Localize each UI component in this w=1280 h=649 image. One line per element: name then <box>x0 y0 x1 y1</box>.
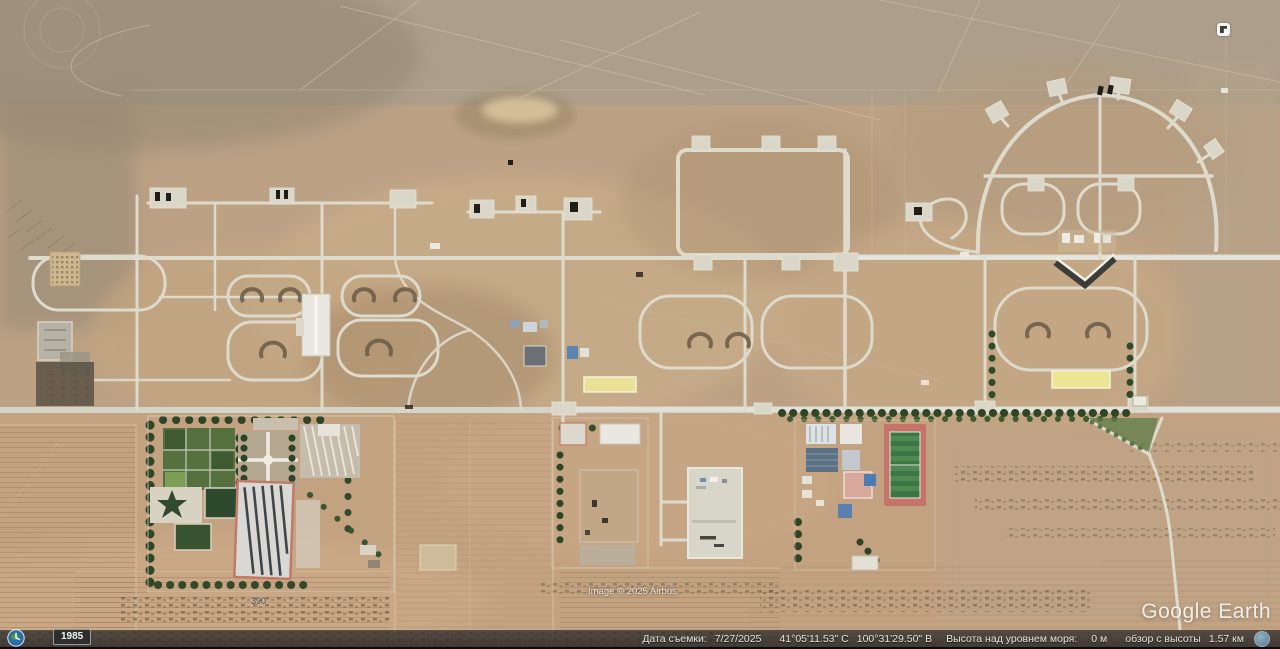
status-bar: Дата съемки: 7/27/2025 41°05'11.53" С 10… <box>0 630 1280 649</box>
elevation-value: 0 м <box>1091 633 1107 645</box>
google-earth-watermark: Google Earth <box>1141 600 1271 624</box>
sports-field <box>884 424 926 506</box>
grid-array-pad <box>52 254 78 284</box>
terrain-elevation-label: 390 <box>251 596 266 606</box>
google-earth-window: 390 Image © 2025 Airbus Google Earth Дат… <box>0 0 1280 649</box>
navigation-widget-icon[interactable] <box>1217 23 1230 36</box>
eye-altitude-value: 1.57 км <box>1209 633 1244 645</box>
imagery-copyright: Image © 2025 Airbus <box>588 586 677 597</box>
capture-date-value: 7/27/2025 <box>715 633 762 645</box>
capture-date-label: Дата съемки: <box>642 633 706 645</box>
eye-altitude-label: обзор с высоты <box>1125 633 1201 645</box>
historical-imagery-icon[interactable] <box>7 629 25 647</box>
walled-lot <box>688 468 742 558</box>
elevation-label: Высота над уровнем моря: <box>946 633 1077 645</box>
latitude-value: 41°05'11.53" С <box>779 633 848 645</box>
historical-year-chip[interactable]: 1985 <box>53 629 91 645</box>
satellite-map[interactable] <box>0 0 1280 649</box>
navigation-glyph <box>1220 26 1227 33</box>
eye-icon[interactable] <box>1254 631 1270 647</box>
longitude-value: 100°31'29.50" В <box>857 633 932 645</box>
